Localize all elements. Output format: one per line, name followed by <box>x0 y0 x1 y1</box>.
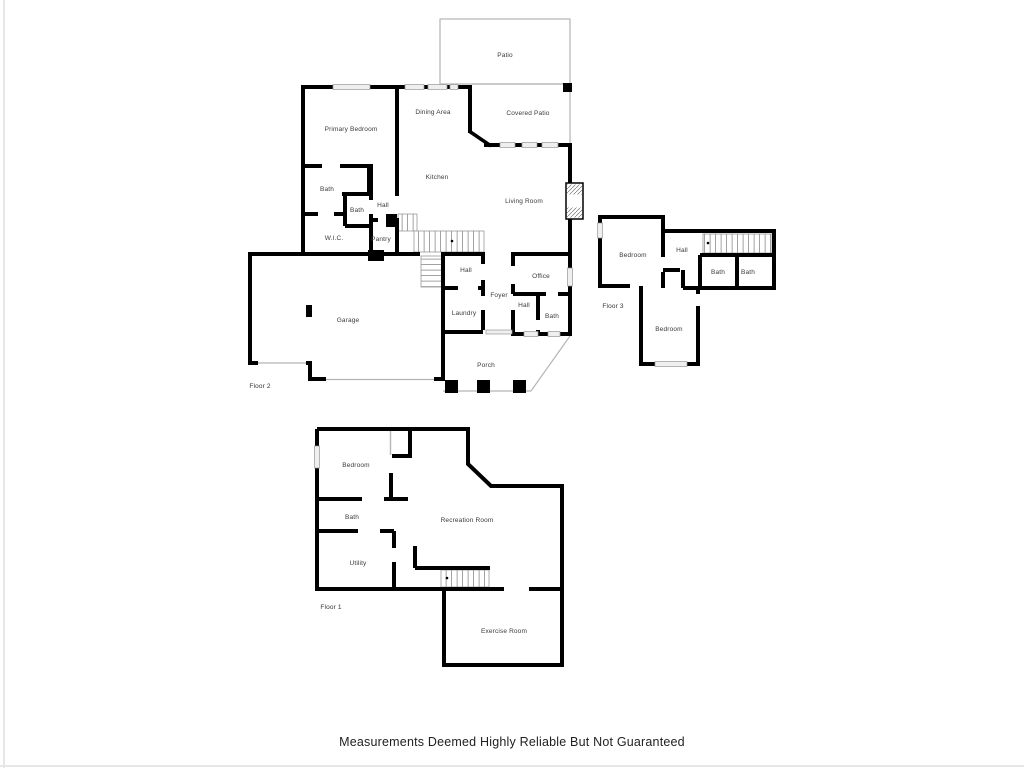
room-label-living-room: Living Room <box>505 199 543 206</box>
page-border-left <box>3 0 5 768</box>
room-label-bath-primary: Bath <box>320 187 334 194</box>
room-label-hall-floor3: Hall <box>676 248 688 255</box>
floor-label-floor2: Floor 2 <box>249 384 270 391</box>
room-label-recreation-room: Recreation Room <box>441 518 494 525</box>
room-label-utility: Utility <box>350 561 367 568</box>
garage-door-lines <box>258 363 434 380</box>
floor2-plan <box>250 19 583 393</box>
room-label-wic: W.I.C. <box>325 236 344 243</box>
stair-arrow-dot <box>446 577 449 580</box>
disclaimer-text: Measurements Deemed Highly Reliable But … <box>0 735 1024 749</box>
room-label-bath-right: Bath <box>741 270 755 277</box>
room-label-covered-patio: Covered Patio <box>506 111 549 118</box>
room-label-exercise-room: Exercise Room <box>481 629 527 636</box>
porch-column <box>445 380 458 393</box>
stairs-floor3 <box>703 234 772 253</box>
room-label-dining-area: Dining Area <box>415 110 450 117</box>
room-label-garage: Garage <box>337 318 360 325</box>
room-label-pantry: Pantry <box>371 237 391 244</box>
room-label-hall-small: Hall <box>518 303 530 310</box>
front-door <box>486 330 512 334</box>
room-label-hall-mid: Hall <box>460 268 472 275</box>
room-label-bedroom-top: Bedroom <box>619 253 646 260</box>
room-label-bedroom-bottom: Bedroom <box>655 327 682 334</box>
room-label-bath-2: Bath <box>350 208 364 215</box>
room-label-office: Office <box>532 274 550 281</box>
room-label-bedroom-floor1: Bedroom <box>342 463 369 470</box>
porch-column <box>513 380 526 393</box>
room-label-hall-upper: Hall <box>377 203 389 210</box>
floor-label-floor1: Floor 1 <box>320 605 341 612</box>
room-label-patio: Patio <box>497 53 513 60</box>
floorplan-page: { "footer": { "disclaimer": "Measurement… <box>0 0 1024 768</box>
room-label-primary-bedroom: Primary Bedroom <box>325 127 378 134</box>
room-label-porch: Porch <box>477 363 495 370</box>
floor3-plan <box>598 215 777 367</box>
stairs-floor1 <box>441 570 489 587</box>
page-border-bottom <box>0 765 1024 767</box>
room-label-bath-office: Bath <box>545 314 559 321</box>
stair-arrow-dot <box>451 240 454 243</box>
porch-column <box>477 380 490 393</box>
room-label-bath-left: Bath <box>711 270 725 277</box>
floor-label-floor3: Floor 3 <box>602 304 623 311</box>
room-label-kitchen: Kitchen <box>426 175 449 182</box>
room-label-laundry: Laundry <box>452 311 477 318</box>
stair-arrow-dot <box>707 242 710 245</box>
room-label-bath-floor1: Bath <box>345 515 359 522</box>
windows-floor1 <box>315 446 320 468</box>
fireplace <box>566 183 583 219</box>
porch-outline <box>443 336 570 391</box>
room-label-foyer: Foyer <box>490 293 507 300</box>
